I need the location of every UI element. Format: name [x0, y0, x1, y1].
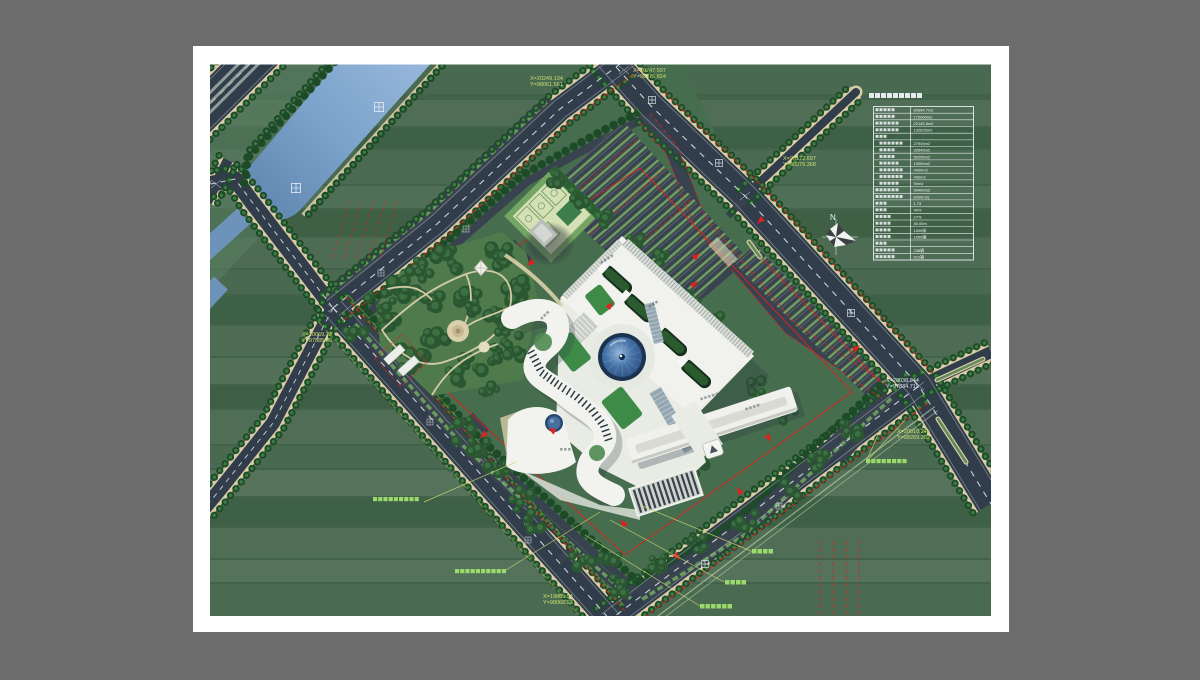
- svg-text:Y=97834.719: Y=97834.719: [886, 384, 919, 390]
- svg-text:812辆: 812辆: [914, 254, 925, 260]
- svg-text:400m2: 400m2: [914, 174, 927, 179]
- svg-text:40%: 40%: [914, 208, 922, 213]
- svg-text:22145.8m2: 22145.8m2: [914, 121, 935, 126]
- svg-text:19000m2: 19000m2: [914, 161, 931, 166]
- svg-text:N: N: [830, 213, 836, 222]
- svg-text:172000m2: 172000m2: [914, 114, 934, 119]
- svg-text:80.00m: 80.00m: [914, 221, 928, 226]
- svg-text:27945m2: 27945m2: [914, 141, 931, 146]
- svg-text:Y=98269.202: Y=98269.202: [897, 435, 930, 441]
- svg-text:1000床: 1000床: [914, 227, 927, 233]
- svg-text:27%: 27%: [914, 214, 922, 219]
- svg-text:80694.7m2: 80694.7m2: [914, 108, 935, 113]
- svg-text:1.73: 1.73: [914, 201, 923, 206]
- svg-text:Y=98061.561: Y=98061.561: [530, 82, 563, 88]
- svg-text:4900m2: 4900m2: [914, 168, 929, 173]
- svg-text:39400m2: 39400m2: [914, 188, 931, 193]
- svg-text:132625m2: 132625m2: [914, 128, 934, 133]
- svg-text:1050辆: 1050辆: [914, 233, 927, 239]
- svg-text:Y=97885.59: Y=97885.59: [302, 338, 332, 344]
- svg-text:50m2: 50m2: [914, 181, 925, 186]
- svg-text:50295m2: 50295m2: [914, 154, 931, 159]
- svg-text:Y=98075.824: Y=98075.824: [633, 74, 666, 80]
- svg-text:Y=98079.368: Y=98079.368: [783, 162, 816, 168]
- svg-text:Y=98068.23: Y=98068.23: [543, 600, 573, 606]
- svg-text:30545m2: 30545m2: [914, 148, 931, 153]
- svg-text:238辆: 238辆: [914, 247, 925, 253]
- svg-text:6000m2): 6000m2): [914, 194, 930, 199]
